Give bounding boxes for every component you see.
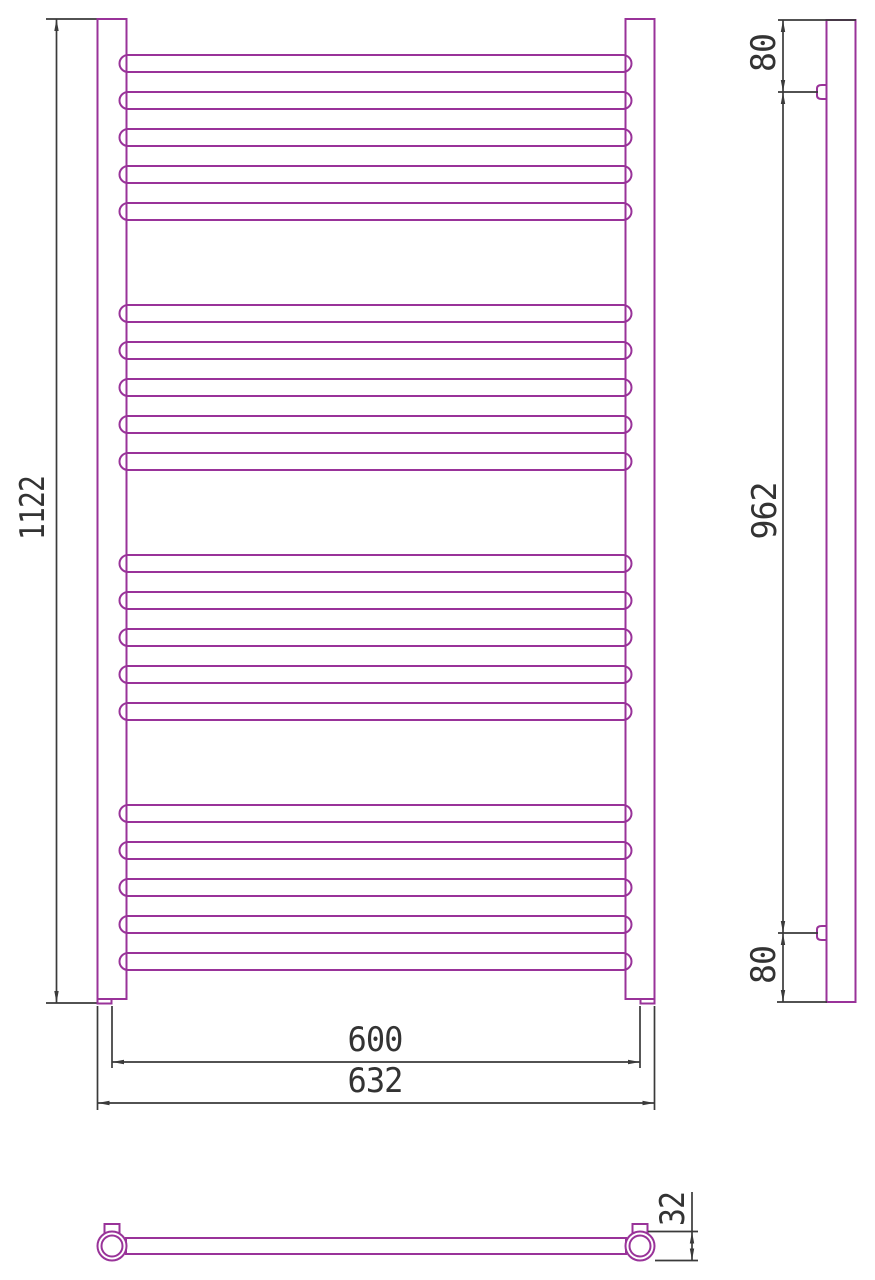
dimension-tube-diameter: 32 [648, 1192, 698, 1261]
rung [120, 453, 632, 470]
height-dimension-label: 1122 [13, 476, 53, 540]
tube-diameter-label: 32 [653, 1192, 693, 1226]
rung [120, 916, 632, 933]
rung [120, 592, 632, 609]
rung [120, 342, 632, 359]
rung [120, 92, 632, 109]
rung-groups [120, 55, 632, 970]
side-post [827, 20, 856, 1002]
left-post-section-inner [102, 1236, 123, 1257]
rung [120, 203, 632, 220]
rung [120, 629, 632, 646]
top-offset-label: 80 [744, 34, 784, 72]
dimension-axle-width: 600 [112, 1006, 640, 1068]
rung [120, 879, 632, 896]
lower-wall-bracket [817, 926, 827, 940]
left-post-foot [98, 999, 112, 1004]
upper-wall-bracket [817, 85, 827, 99]
rung [120, 805, 632, 822]
drawing-canvas: 1122 600 632 [0, 0, 875, 1280]
rung [120, 703, 632, 720]
right-post-section-inner [630, 1236, 651, 1257]
bottom-view: 32 [98, 1192, 699, 1261]
rung [120, 305, 632, 322]
right-post-foot [641, 999, 655, 1004]
dimension-height: 1122 [13, 19, 99, 1003]
rung [120, 166, 632, 183]
rung [120, 953, 632, 970]
rung [120, 842, 632, 859]
side-view: 80 962 80 [744, 20, 856, 1002]
rung [120, 666, 632, 683]
cross-tube [126, 1238, 626, 1254]
rung [120, 555, 632, 572]
overall-width-label: 632 [348, 1061, 403, 1101]
rung [120, 129, 632, 146]
axle-width-label: 600 [348, 1020, 403, 1060]
rung [120, 379, 632, 396]
bottom-offset-label: 80 [744, 946, 784, 984]
towel-rail-technical-drawing: 1122 600 632 [0, 0, 875, 1280]
front-view: 1122 600 632 [13, 19, 655, 1110]
rung [120, 55, 632, 72]
rung [120, 416, 632, 433]
bracket-spacing-label: 962 [745, 483, 785, 540]
